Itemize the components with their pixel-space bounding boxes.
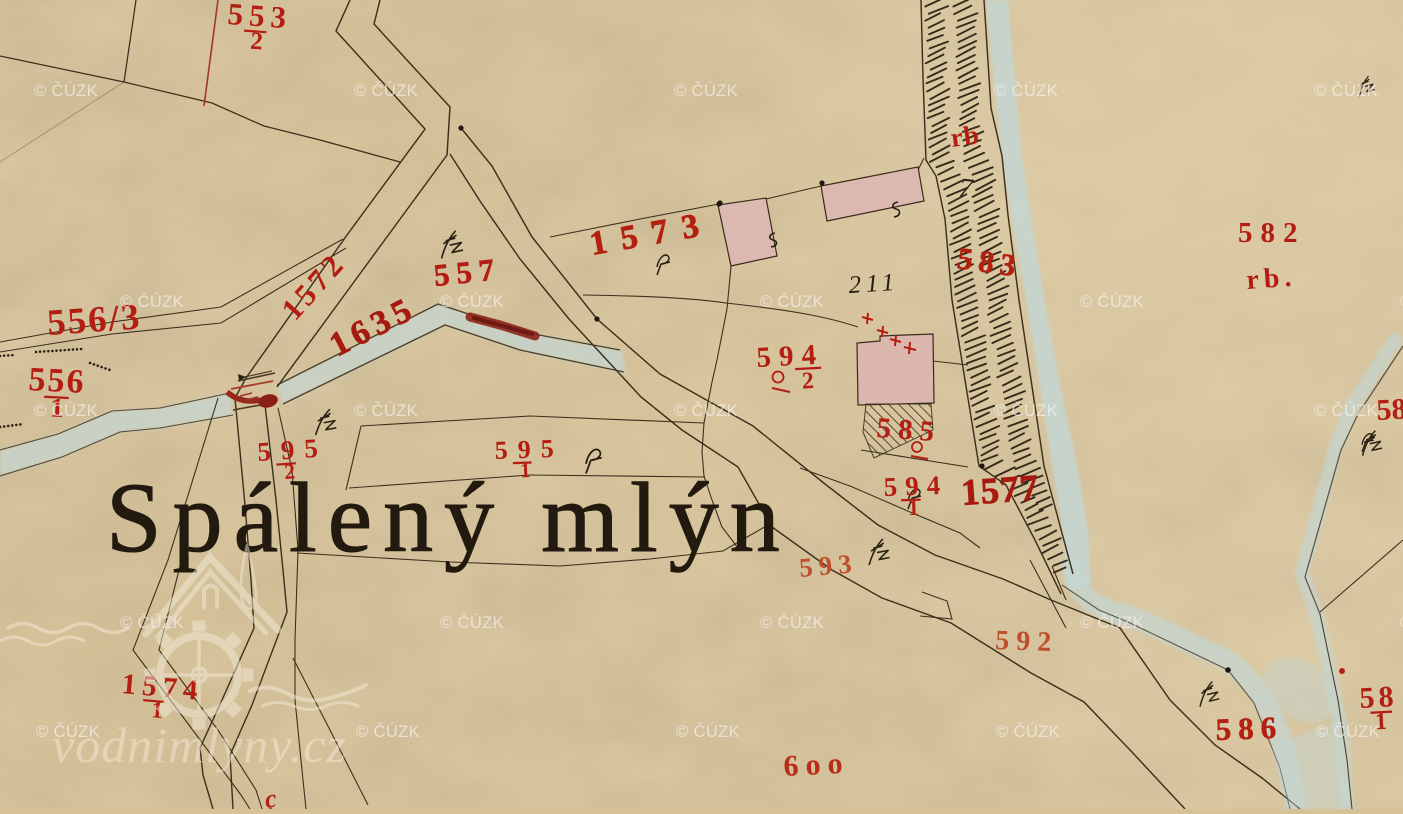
svg-text:1577: 1577: [960, 468, 1041, 514]
svg-text:211: 211: [848, 269, 900, 299]
svg-text:© ČÚZK: © ČÚZK: [356, 722, 420, 741]
svg-text:593: 593: [798, 548, 859, 583]
svg-text:585: 585: [876, 412, 943, 448]
svg-text:© ČÚZK: © ČÚZK: [34, 401, 98, 420]
svg-text:© ČÚZK: © ČÚZK: [1314, 401, 1378, 420]
svg-text:© ČÚZK: © ČÚZK: [34, 81, 98, 100]
svg-text:58: 58: [1376, 392, 1403, 427]
svg-text:© ČÚZK: © ČÚZK: [994, 401, 1058, 420]
svg-text:© ČÚZK: © ČÚZK: [1080, 292, 1144, 311]
svg-text:592: 592: [995, 625, 1059, 658]
svg-text:© ČÚZK: © ČÚZK: [354, 401, 418, 420]
svg-text:© ČÚZK: © ČÚZK: [440, 613, 504, 632]
svg-text:© ČÚZK: © ČÚZK: [354, 81, 418, 100]
svg-text:© ČÚZK: © ČÚZK: [674, 81, 738, 100]
svg-text:© ČÚZK: © ČÚZK: [996, 722, 1060, 741]
svg-text:© ČÚZK: © ČÚZK: [440, 292, 504, 311]
svg-text:vodnimlyny.cz: vodnimlyny.cz: [52, 717, 347, 773]
svg-text:© ČÚZK: © ČÚZK: [676, 722, 740, 741]
svg-text:© ČÚZK: © ČÚZK: [1080, 613, 1144, 632]
svg-text:© ČÚZK: © ČÚZK: [1316, 722, 1380, 741]
svg-text:557: 557: [432, 251, 503, 293]
svg-text:6oo: 6oo: [783, 747, 851, 783]
svg-text:2: 2: [801, 368, 814, 395]
svg-text:© ČÚZK: © ČÚZK: [760, 292, 824, 311]
svg-text:rb: rb: [949, 119, 982, 153]
svg-text:© ČÚZK: © ČÚZK: [994, 81, 1058, 100]
svg-text:rb.: rb.: [1245, 262, 1297, 296]
svg-text:© ČÚZK: © ČÚZK: [760, 613, 824, 632]
svg-text:582: 582: [1238, 217, 1306, 249]
svg-text:© ČÚZK: © ČÚZK: [120, 292, 184, 311]
svg-text:© ČÚZK: © ČÚZK: [1314, 81, 1378, 100]
svg-text:586: 586: [1215, 710, 1284, 747]
svg-text:© ČÚZK: © ČÚZK: [674, 401, 738, 420]
